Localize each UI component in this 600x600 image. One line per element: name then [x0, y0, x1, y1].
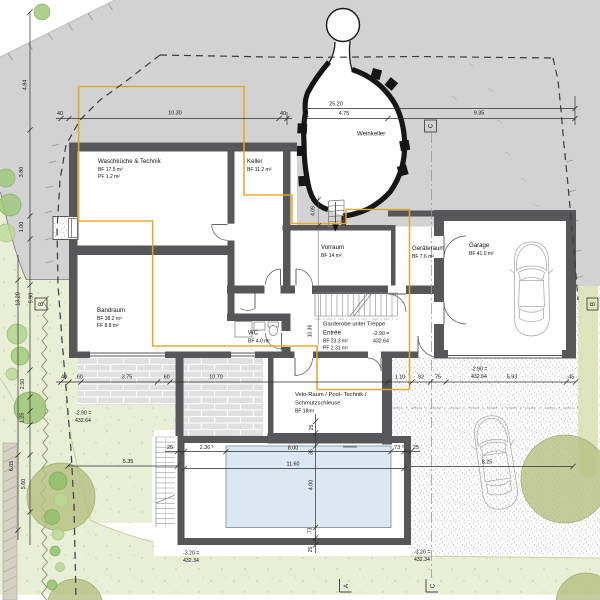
- svg-text:4.09: 4.09: [311, 206, 317, 216]
- svg-text:2.50: 2.50: [20, 379, 26, 390]
- svg-text:BF 38.2 m²: BF 38.2 m²: [97, 316, 122, 322]
- svg-text:8.25: 8.25: [482, 460, 493, 466]
- svg-text:13.20: 13.20: [16, 292, 22, 306]
- svg-text:Garage: Garage: [469, 242, 490, 249]
- svg-text:4.00: 4.00: [309, 480, 315, 491]
- svg-text:BF 14 m²: BF 14 m²: [321, 253, 342, 259]
- svg-text:40: 40: [280, 111, 286, 117]
- svg-text:3.80: 3.80: [19, 167, 25, 178]
- svg-text:10.30: 10.30: [168, 111, 182, 117]
- svg-text:PF 2.31 m²: PF 2.31 m²: [323, 346, 348, 352]
- svg-text:BF 18m²: BF 18m²: [295, 409, 315, 415]
- svg-text:.60: .60: [162, 375, 170, 381]
- svg-text:BF 23.3 m²: BF 23.3 m²: [323, 339, 348, 345]
- svg-text:Vorraum: Vorraum: [321, 244, 344, 251]
- svg-text:25: 25: [309, 425, 315, 431]
- svg-text:Geräteraum: Geräteraum: [412, 245, 445, 252]
- svg-text:B: B: [39, 302, 45, 306]
- svg-text:C: C: [430, 583, 437, 588]
- svg-text:10.70: 10.70: [209, 375, 223, 381]
- svg-text:Garderobe unter Treppe: Garderobe unter Treppe: [323, 322, 385, 328]
- svg-text:Velo-Raum / Pool- Technik /: Velo-Raum / Pool- Technik /: [295, 392, 367, 398]
- svg-text:6.05: 6.05: [9, 461, 15, 472]
- svg-text:-3.20 =: -3.20 =: [414, 550, 430, 556]
- svg-text:11.60: 11.60: [286, 462, 299, 468]
- svg-text:-3.20 =: -3.20 =: [183, 551, 199, 557]
- svg-text:432.64: 432.64: [75, 418, 91, 424]
- svg-text:1.10: 1.10: [395, 375, 406, 381]
- svg-text:B: B: [591, 302, 597, 306]
- svg-text:5.60: 5.60: [21, 479, 27, 490]
- svg-text:BF 41.0 m²: BF 41.0 m²: [469, 251, 494, 257]
- svg-text:9.35: 9.35: [474, 111, 485, 117]
- svg-text:.60: .60: [75, 375, 83, 381]
- svg-text:1.00: 1.00: [19, 222, 25, 233]
- svg-text:-2.90 =: -2.90 =: [75, 411, 91, 417]
- svg-text:Entrée: Entrée: [323, 330, 342, 337]
- svg-text:25: 25: [167, 445, 173, 451]
- svg-text:.73: .73: [308, 527, 314, 534]
- svg-text:40: 40: [57, 111, 63, 117]
- svg-text:3.75: 3.75: [122, 375, 133, 381]
- svg-text:5: 5: [212, 445, 214, 449]
- svg-text:25: 25: [308, 547, 314, 553]
- svg-text:.73: .73: [393, 445, 401, 451]
- svg-text:C: C: [429, 123, 435, 128]
- svg-text:40: 40: [61, 375, 67, 381]
- svg-text:-2.90 =: -2.90 =: [373, 331, 389, 337]
- svg-text:5.90: 5.90: [29, 293, 35, 304]
- svg-text:75: 75: [435, 375, 441, 381]
- svg-text:BF 7.6 m²: BF 7.6 m²: [412, 254, 434, 260]
- svg-text:25: 25: [413, 445, 419, 451]
- svg-text:BF 4.0 m²: BF 4.0 m²: [248, 339, 270, 345]
- svg-text:4.84: 4.84: [23, 80, 29, 91]
- svg-text:FF 8.8 m²: FF 8.8 m²: [97, 323, 119, 329]
- svg-text:Bandraum: Bandraum: [97, 307, 125, 314]
- svg-text:Keller: Keller: [247, 158, 263, 165]
- svg-text:432.64: 432.64: [471, 374, 487, 380]
- svg-text:-2.90 =: -2.90 =: [471, 367, 487, 373]
- svg-text:5.35: 5.35: [123, 459, 134, 465]
- svg-text:25.20: 25.20: [329, 102, 343, 108]
- svg-text:92: 92: [418, 375, 424, 381]
- svg-text:1.25: 1.25: [20, 413, 26, 424]
- svg-text:WC: WC: [248, 330, 259, 337]
- svg-text:.45: .45: [567, 375, 575, 381]
- svg-text:BF 17.5 m²: BF 17.5 m²: [98, 167, 123, 173]
- svg-text:BF 11.2 m²: BF 11.2 m²: [247, 167, 272, 173]
- svg-text:4.75: 4.75: [339, 111, 350, 117]
- svg-text:Weinkeller: Weinkeller: [357, 131, 385, 138]
- svg-text:432.34: 432.34: [414, 557, 430, 563]
- svg-text:432.34: 432.34: [183, 558, 199, 564]
- svg-text:2.36: 2.36: [200, 445, 211, 451]
- svg-text:PF 1.2 m²: PF 1.2 m²: [98, 174, 120, 180]
- svg-text:Schmutzschleuse: Schmutzschleuse: [295, 401, 340, 407]
- svg-text:8.00: 8.00: [288, 446, 299, 452]
- svg-text:5.93: 5.93: [507, 375, 518, 381]
- svg-text:5: 5: [402, 445, 404, 449]
- svg-text:10.36: 10.36: [307, 325, 313, 338]
- svg-text:432.64: 432.64: [373, 339, 389, 345]
- svg-text:36: 36: [309, 449, 315, 455]
- svg-text:Waschküche & Technik: Waschküche & Technik: [98, 158, 162, 165]
